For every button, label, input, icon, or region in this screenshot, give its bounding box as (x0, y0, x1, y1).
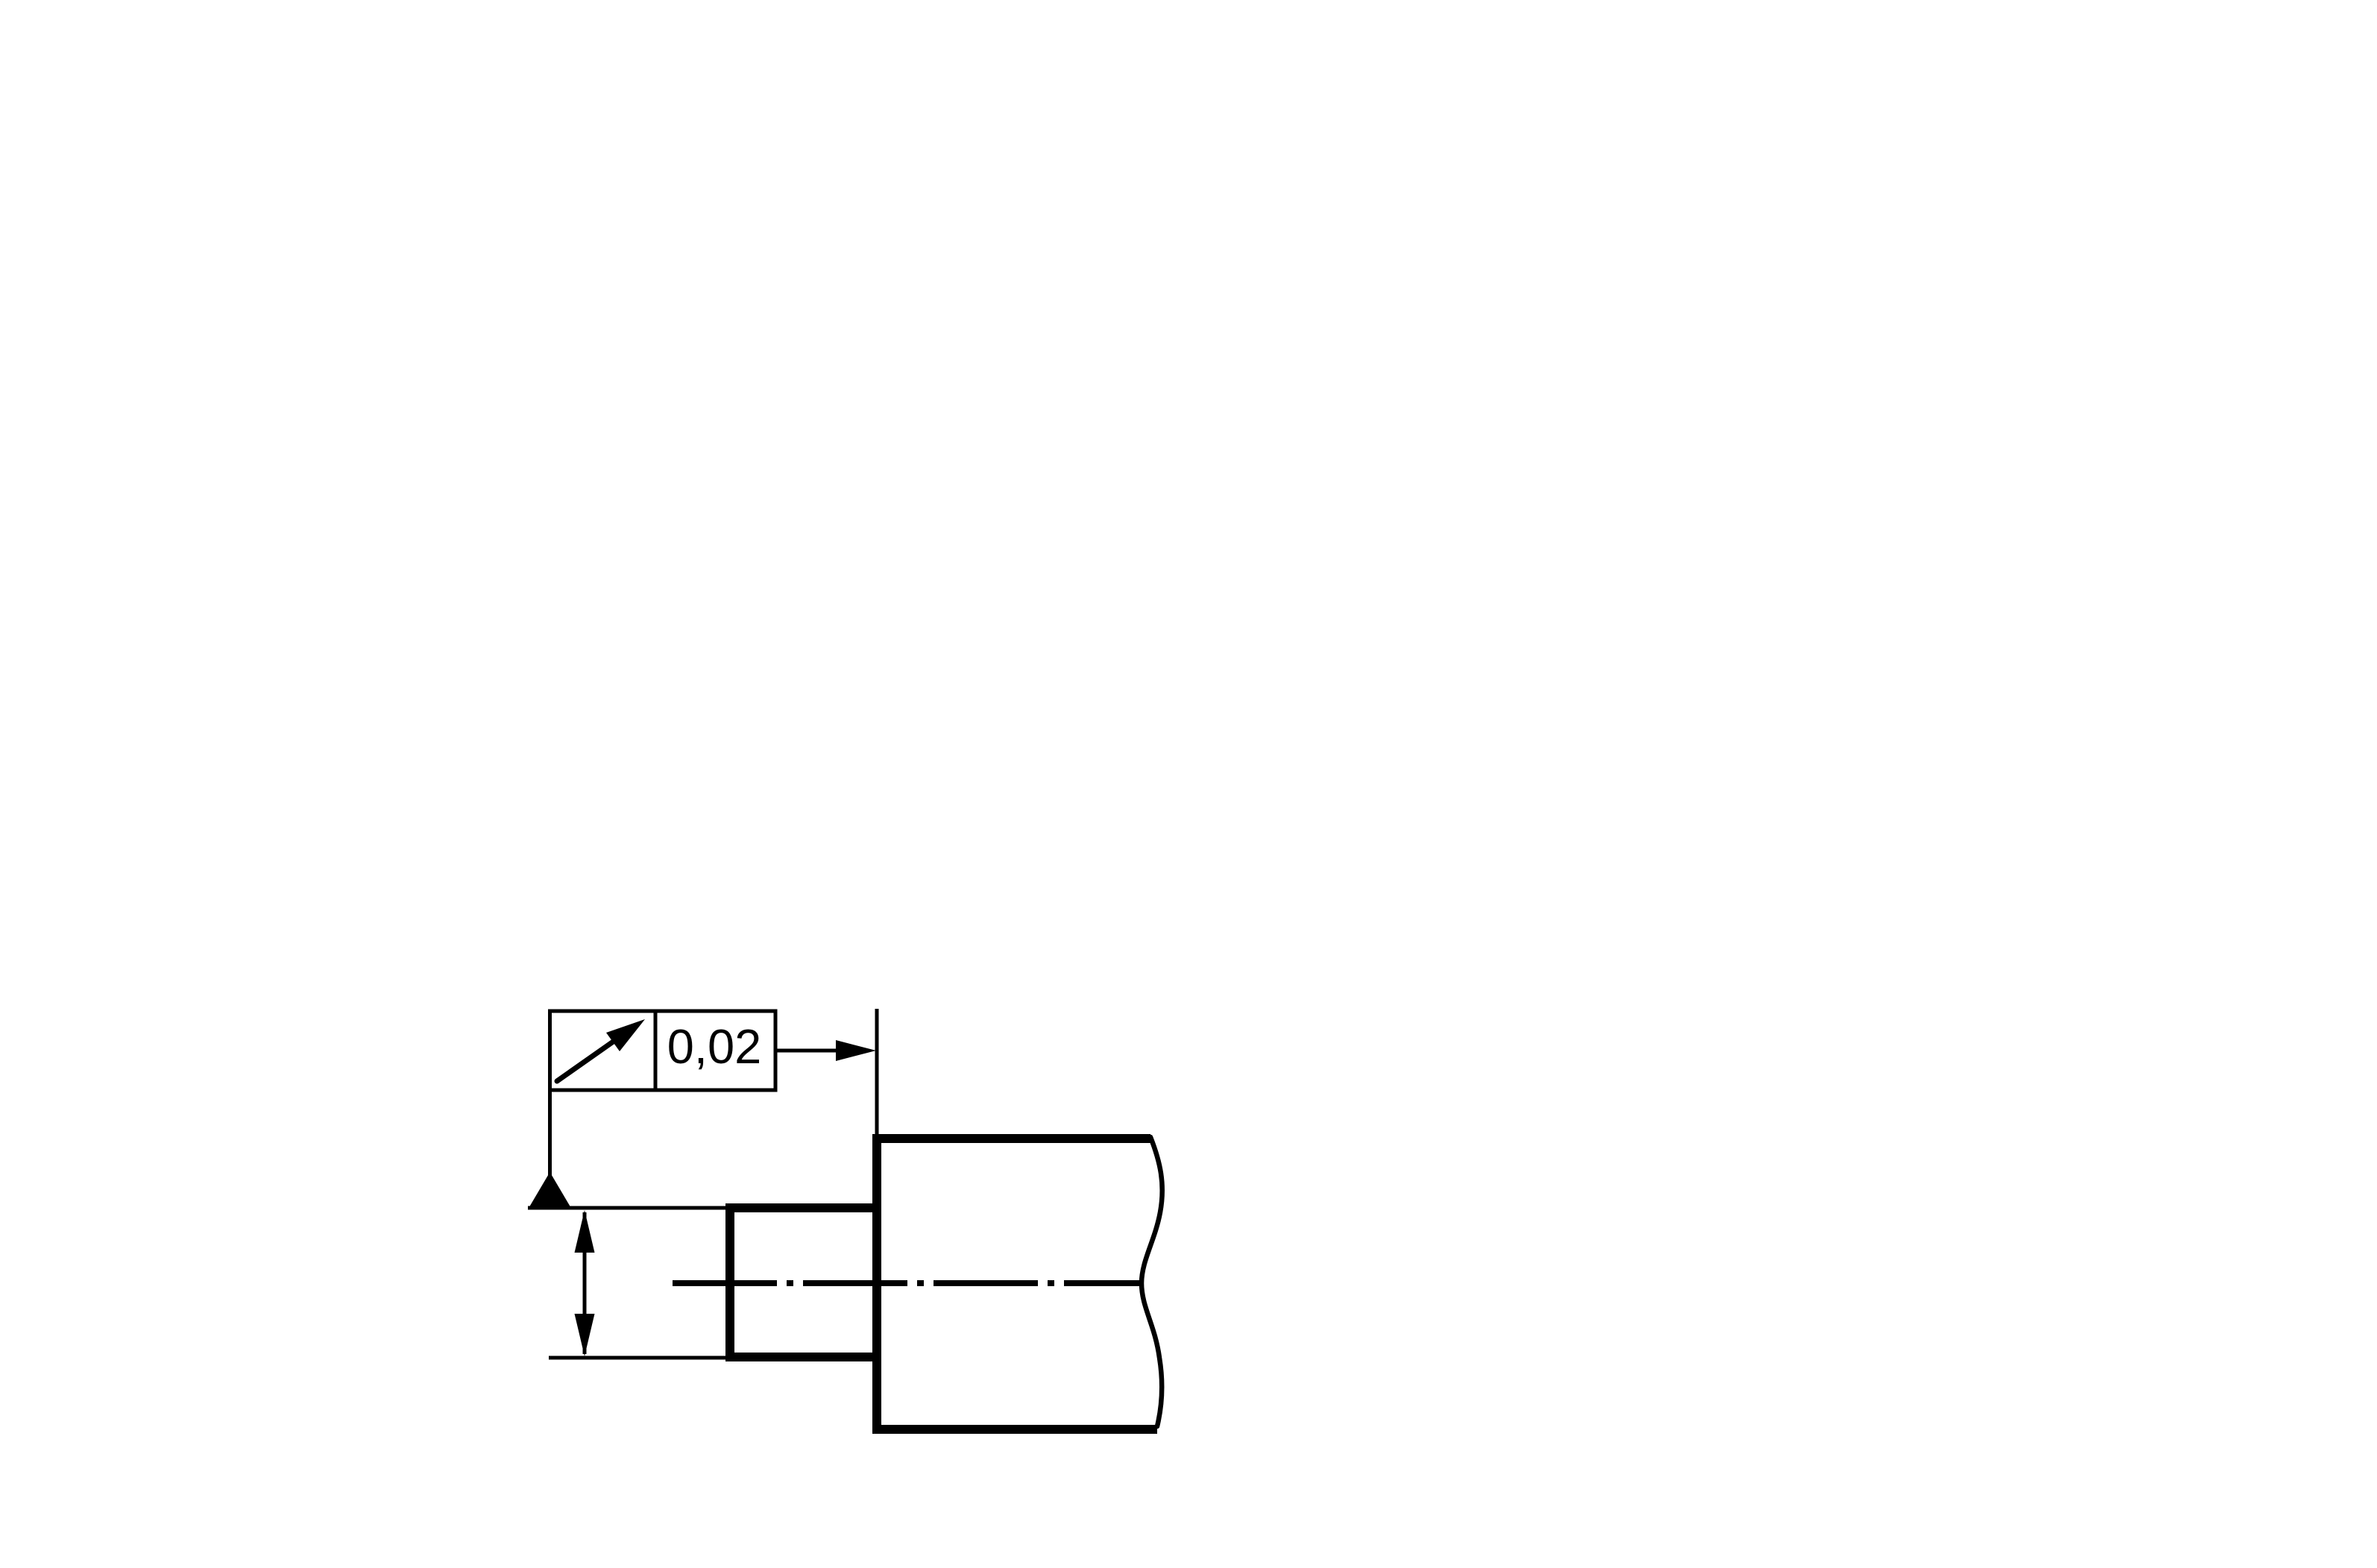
drawing-canvas: 0,02 (0, 0, 2377, 1568)
datum-triangle-icon (528, 1172, 572, 1209)
tolerance-value: 0,02 (667, 1019, 762, 1074)
dimension-arrowhead-up-icon (575, 1210, 595, 1253)
datum-indicator (528, 1089, 572, 1209)
gdt-runout-drawing: 0,02 (0, 0, 2377, 1568)
dimension-line-group (575, 1210, 595, 1356)
dimension-arrowhead-down-icon (575, 1314, 595, 1356)
leader-arrowhead-icon (836, 1040, 876, 1061)
feature-control-frame: 0,02 (550, 1011, 776, 1090)
leader (775, 1040, 876, 1061)
break-line (1142, 1137, 1162, 1426)
